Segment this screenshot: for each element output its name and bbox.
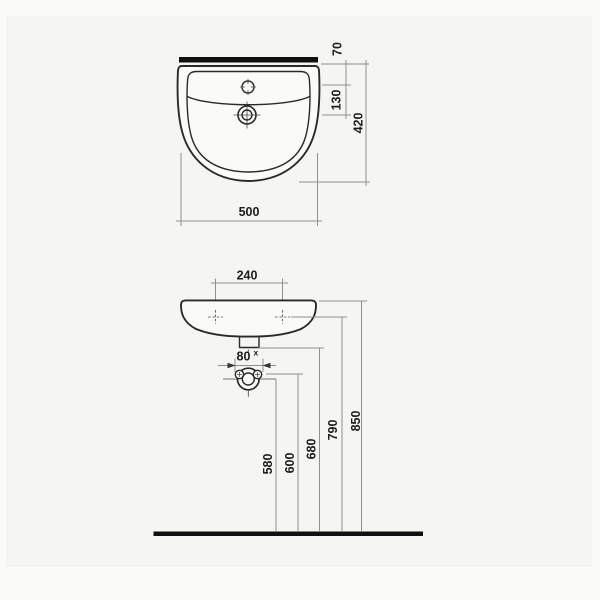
wall-edge-bar: [179, 57, 318, 63]
dim-680-label: 680: [305, 439, 319, 460]
dim-80-sup: x: [254, 348, 259, 358]
dim-420-label: 420: [352, 113, 366, 134]
dim-130-label: 130: [330, 90, 344, 111]
dim-70-label: 70: [331, 42, 345, 56]
dim-240-label: 240: [237, 269, 258, 283]
dim-600-label: 600: [283, 453, 297, 474]
dim-500-label: 500: [239, 205, 260, 219]
basin-front-outline: [181, 300, 316, 336]
dim-850-label: 850: [349, 411, 363, 432]
dim-80-label: 80: [237, 350, 251, 364]
floor-line: [154, 532, 424, 537]
dim-580-label: 580: [261, 454, 275, 475]
washbasin-technical-drawing: 70 130 420 500 240: [0, 0, 600, 600]
dim-790-label: 790: [326, 420, 340, 441]
